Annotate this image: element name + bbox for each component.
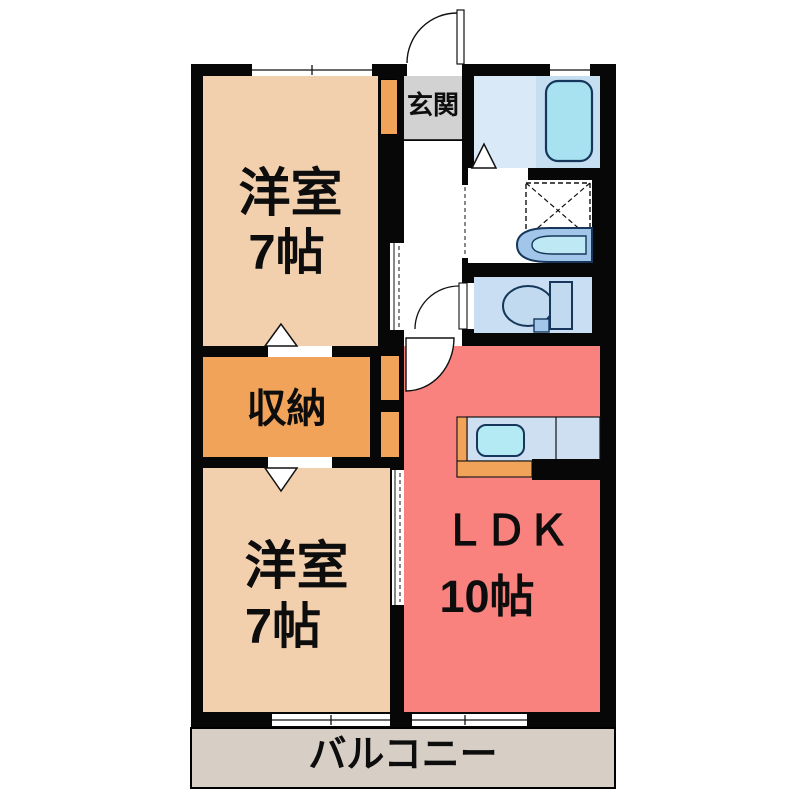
label-storage: 収納 (203, 388, 370, 430)
hallway-floor (404, 141, 462, 346)
label-bedroom-bottom-area: 7帖 (193, 602, 373, 653)
label-balcony: バルコニー (190, 736, 616, 776)
washroom-floor (468, 180, 592, 263)
toilet-room-floor (474, 277, 592, 333)
label-ldk-name: ＬＤＫ (408, 509, 604, 553)
label-ldk-area: 10帖 (398, 573, 576, 620)
label-entrance: 玄関 (402, 92, 464, 119)
storage-compartment-lower (381, 412, 399, 457)
label-bedroom-top-area: 7帖 (199, 228, 374, 279)
floor-plan: 洋室 7帖 玄関 収納 洋室 7帖 ＬＤＫ 10帖 バルコニー (0, 0, 800, 800)
storage-compartment-upper (381, 356, 399, 400)
bathtub-surround (536, 76, 600, 168)
label-bedroom-top-name: 洋室 (203, 167, 378, 222)
label-bedroom-bottom-name: 洋室 (203, 540, 390, 595)
shoe-cabinet (380, 79, 398, 135)
